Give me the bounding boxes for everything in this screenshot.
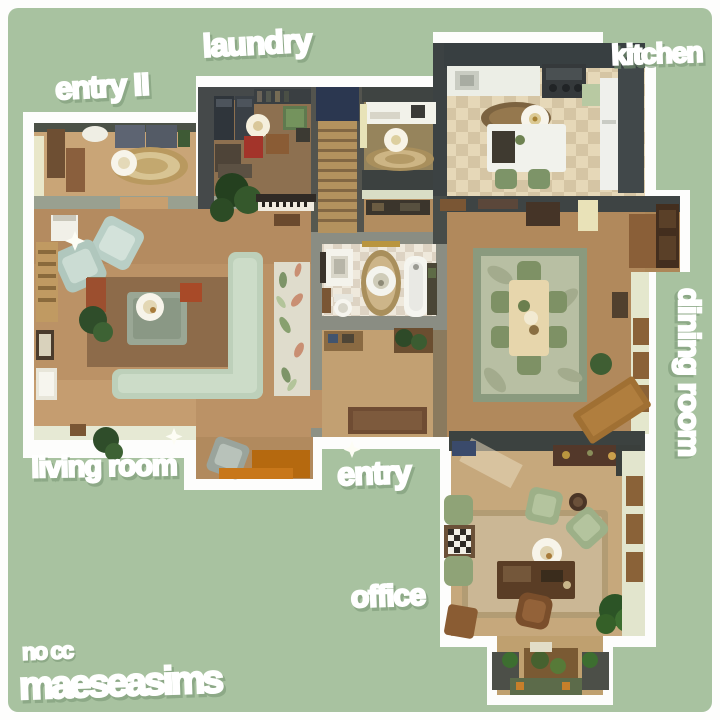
svg-text:no cc: no cc xyxy=(22,637,75,665)
svg-text:kitchen: kitchen xyxy=(611,36,703,70)
svg-text:living room: living room xyxy=(31,450,177,485)
svg-text:dining room: dining room xyxy=(672,288,707,456)
svg-text:entry II: entry II xyxy=(54,67,149,107)
svg-text:laundry: laundry xyxy=(202,22,314,64)
svg-text:entry: entry xyxy=(337,454,413,493)
svg-text:office: office xyxy=(350,579,425,615)
svg-text:maeseasims: maeseasims xyxy=(18,658,224,708)
